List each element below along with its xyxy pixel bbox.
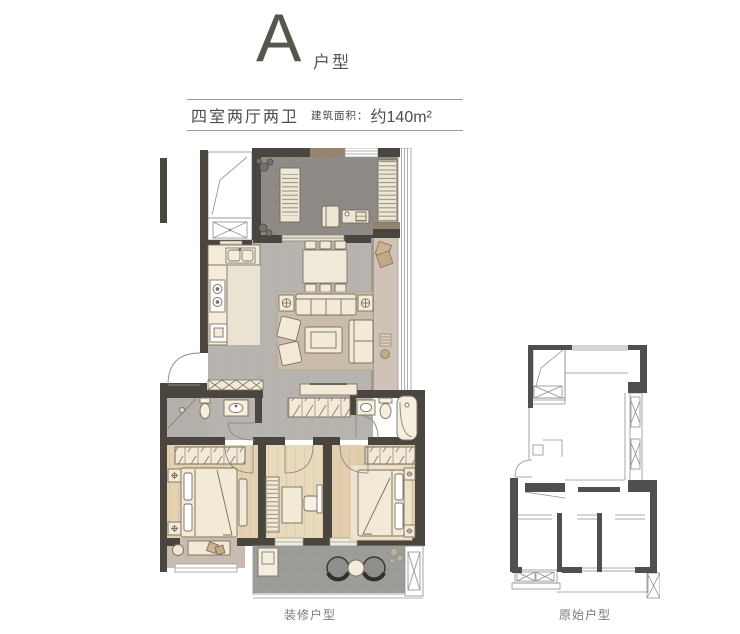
dining-area bbox=[303, 241, 347, 292]
plan-type-suffix: 户型 bbox=[313, 48, 351, 73]
spec-rooms: 四室两厅两卫 bbox=[187, 103, 299, 127]
plan-type-letter: A bbox=[256, 4, 301, 72]
right-window-strip bbox=[398, 148, 411, 398]
balcony-chairs bbox=[327, 557, 385, 579]
original-plan bbox=[505, 340, 660, 602]
original-plan-walls bbox=[510, 345, 657, 573]
spec-area-label: 建筑面积： bbox=[311, 108, 369, 123]
common-stairwell bbox=[208, 152, 252, 240]
caption-original-plan: 原始户型 bbox=[505, 606, 665, 623]
floorplan-page: A 户型 四室两厅两卫 建筑面积： 约140m² bbox=[0, 0, 740, 634]
furnished-plan bbox=[160, 148, 428, 603]
spec-box: 四室两厅两卫 建筑面积： 约140m² bbox=[187, 99, 463, 131]
spec-area-value: 约140m² bbox=[371, 103, 432, 127]
ac-platform bbox=[405, 546, 423, 596]
caption-furnished-plan: 装修户型 bbox=[160, 606, 460, 623]
